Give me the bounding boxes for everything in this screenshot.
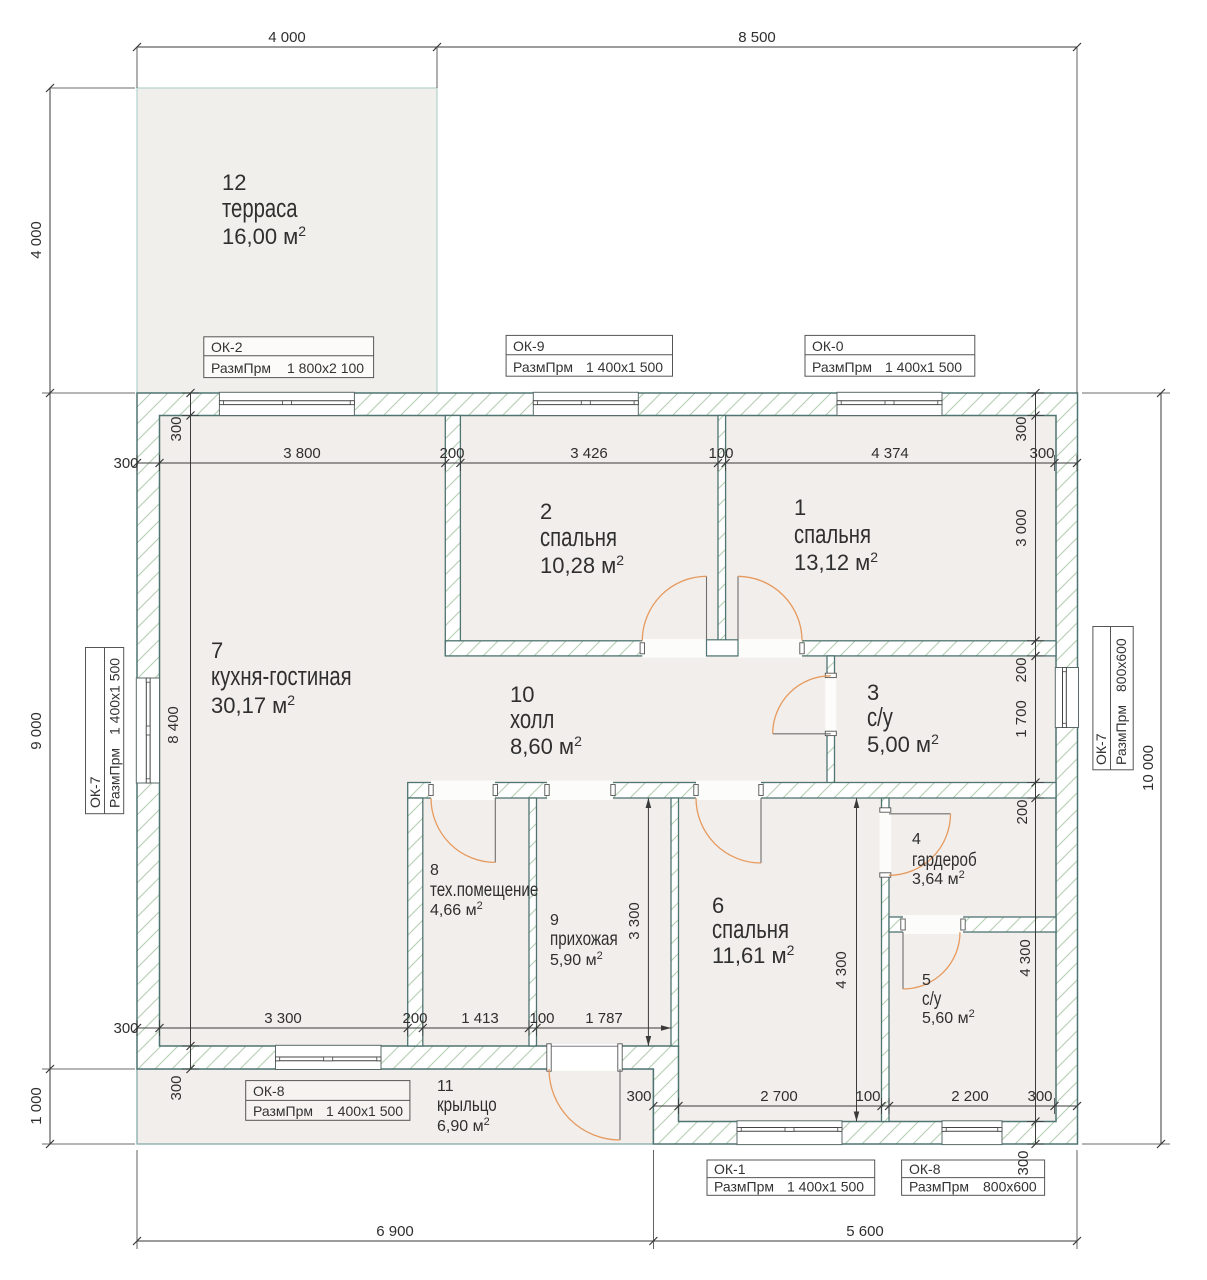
svg-text:кухня-гостиная: кухня-гостиная — [211, 662, 352, 691]
svg-text:1 400x1 500: 1 400x1 500 — [787, 1179, 864, 1195]
svg-text:8,60 м2: 8,60 м2 — [510, 733, 582, 759]
svg-text:16,00 м2: 16,00 м2 — [222, 223, 306, 249]
svg-text:ОК-2: ОК-2 — [211, 339, 243, 355]
svg-text:10,28 м2: 10,28 м2 — [540, 552, 624, 578]
svg-text:300: 300 — [1027, 1088, 1052, 1105]
svg-text:300: 300 — [168, 416, 185, 441]
svg-text:200: 200 — [1013, 657, 1030, 682]
svg-text:ОК-7: ОК-7 — [1093, 733, 1109, 765]
svg-text:1: 1 — [794, 495, 806, 520]
svg-text:11,61 м2: 11,61 м2 — [712, 942, 795, 968]
svg-text:8: 8 — [430, 862, 439, 879]
svg-text:200: 200 — [1014, 799, 1031, 824]
svg-text:6 900: 6 900 — [376, 1223, 414, 1240]
svg-text:100: 100 — [708, 445, 733, 462]
svg-text:прихожая: прихожая — [550, 927, 618, 949]
svg-text:РазмПрм: РазмПрм — [513, 359, 573, 375]
svg-text:200: 200 — [402, 1010, 427, 1027]
svg-text:8 400: 8 400 — [165, 706, 182, 744]
svg-text:с/у: с/у — [922, 987, 942, 1009]
svg-text:300: 300 — [626, 1088, 651, 1105]
svg-text:300: 300 — [113, 1020, 138, 1037]
svg-text:7: 7 — [211, 638, 223, 663]
svg-text:1 400x1 500: 1 400x1 500 — [326, 1103, 403, 1119]
svg-text:ОК-1: ОК-1 — [714, 1161, 746, 1177]
svg-text:4,66 м2: 4,66 м2 — [430, 900, 483, 919]
svg-text:3 300: 3 300 — [626, 902, 643, 940]
svg-text:200: 200 — [439, 445, 464, 462]
svg-text:5 600: 5 600 — [846, 1223, 884, 1240]
svg-text:3,64 м2: 3,64 м2 — [912, 869, 965, 888]
svg-text:1 400x1 500: 1 400x1 500 — [586, 359, 663, 375]
svg-text:6,90 м2: 6,90 м2 — [437, 1116, 490, 1135]
svg-text:2 200: 2 200 — [951, 1088, 989, 1105]
svg-text:ОК-8: ОК-8 — [909, 1161, 941, 1177]
svg-text:1 413: 1 413 — [461, 1010, 499, 1027]
svg-text:1 000: 1 000 — [28, 1087, 45, 1125]
svg-text:800x600: 800x600 — [1113, 638, 1129, 692]
svg-text:спальня: спальня — [794, 520, 871, 549]
svg-text:ОК-9: ОК-9 — [513, 338, 545, 354]
svg-text:РазмПрм: РазмПрм — [1113, 705, 1129, 765]
svg-text:РазмПрм: РазмПрм — [107, 748, 123, 808]
svg-text:РазмПрм: РазмПрм — [812, 359, 872, 375]
svg-text:2 700: 2 700 — [760, 1088, 798, 1105]
svg-text:13,12 м2: 13,12 м2 — [794, 549, 878, 575]
svg-text:5,90 м2: 5,90 м2 — [550, 950, 603, 969]
svg-text:РазмПрм: РазмПрм — [714, 1179, 774, 1195]
svg-text:4: 4 — [912, 831, 921, 848]
svg-text:2: 2 — [540, 499, 552, 524]
svg-text:ОК-8: ОК-8 — [253, 1083, 285, 1099]
svg-text:1 800x2 100: 1 800x2 100 — [287, 360, 364, 376]
svg-text:4 300: 4 300 — [1017, 939, 1034, 977]
svg-text:спальня: спальня — [540, 523, 617, 552]
svg-text:спальня: спальня — [712, 915, 789, 944]
svg-text:терраса: терраса — [222, 194, 298, 223]
svg-text:300: 300 — [1015, 1150, 1032, 1175]
svg-text:5,60 м2: 5,60 м2 — [922, 1008, 975, 1027]
svg-text:4 300: 4 300 — [833, 951, 850, 989]
svg-text:холл: холл — [510, 705, 554, 734]
svg-text:3 000: 3 000 — [1013, 509, 1030, 547]
svg-text:с/у: с/у — [867, 703, 893, 732]
svg-text:1 400x1 500: 1 400x1 500 — [107, 658, 123, 735]
svg-text:РазмПрм: РазмПрм — [253, 1103, 313, 1119]
svg-text:100: 100 — [529, 1010, 554, 1027]
svg-text:300: 300 — [1029, 445, 1054, 462]
svg-text:ОК-7: ОК-7 — [87, 776, 103, 808]
svg-text:10: 10 — [510, 682, 534, 707]
svg-text:1 787: 1 787 — [585, 1010, 623, 1027]
svg-text:4 000: 4 000 — [28, 221, 45, 259]
svg-text:300: 300 — [168, 1075, 185, 1100]
svg-text:300: 300 — [113, 455, 138, 472]
svg-text:8 500: 8 500 — [738, 29, 776, 46]
svg-text:РазмПрм: РазмПрм — [909, 1179, 969, 1195]
svg-text:100: 100 — [855, 1088, 880, 1105]
svg-text:4 000: 4 000 — [268, 29, 306, 46]
svg-text:300: 300 — [1013, 416, 1030, 441]
svg-text:30,17 м2: 30,17 м2 — [211, 692, 295, 718]
svg-text:800x600: 800x600 — [983, 1179, 1037, 1195]
svg-text:12: 12 — [222, 170, 246, 195]
svg-text:ОК-0: ОК-0 — [812, 338, 844, 354]
svg-text:1 700: 1 700 — [1013, 700, 1030, 738]
svg-text:тех.помещение: тех.помещение — [430, 878, 538, 900]
svg-text:3 300: 3 300 — [264, 1010, 302, 1027]
svg-text:9 000: 9 000 — [28, 712, 45, 750]
svg-text:3 800: 3 800 — [283, 445, 321, 462]
svg-text:гардероб: гардероб — [912, 848, 977, 870]
svg-text:крыльцо: крыльцо — [437, 1093, 497, 1115]
svg-text:10 000: 10 000 — [1140, 745, 1157, 791]
svg-text:3: 3 — [867, 680, 879, 705]
svg-text:5,00 м2: 5,00 м2 — [867, 731, 939, 757]
svg-text:3 426: 3 426 — [570, 445, 608, 462]
svg-text:4 374: 4 374 — [871, 445, 909, 462]
svg-text:РазмПрм: РазмПрм — [211, 360, 271, 376]
svg-text:1 400x1 500: 1 400x1 500 — [885, 359, 962, 375]
